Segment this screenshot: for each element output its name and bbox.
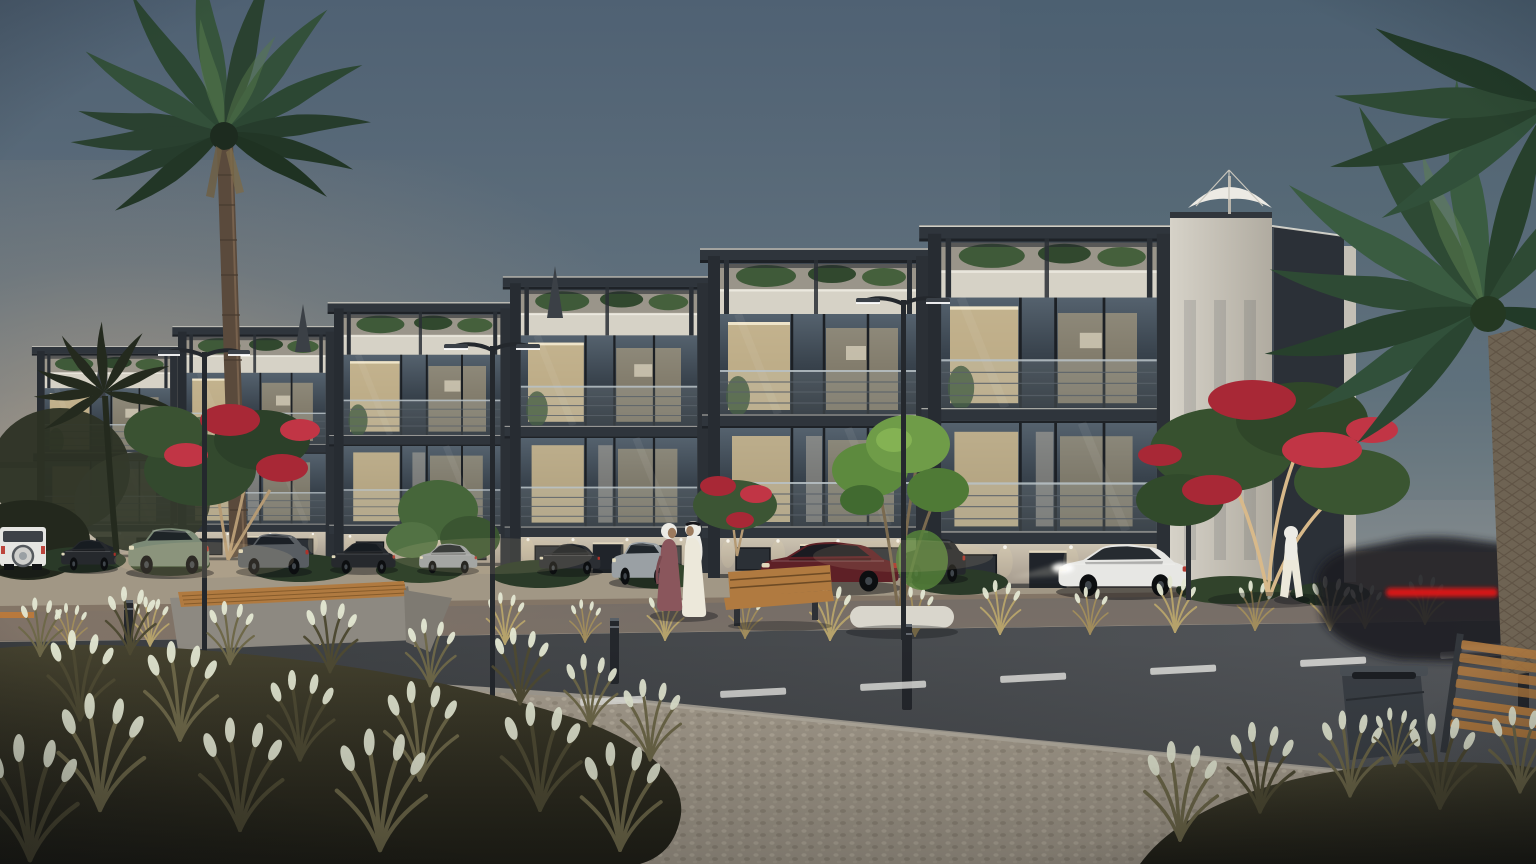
vignette bbox=[0, 0, 1536, 864]
scene-canvas bbox=[0, 0, 1536, 864]
